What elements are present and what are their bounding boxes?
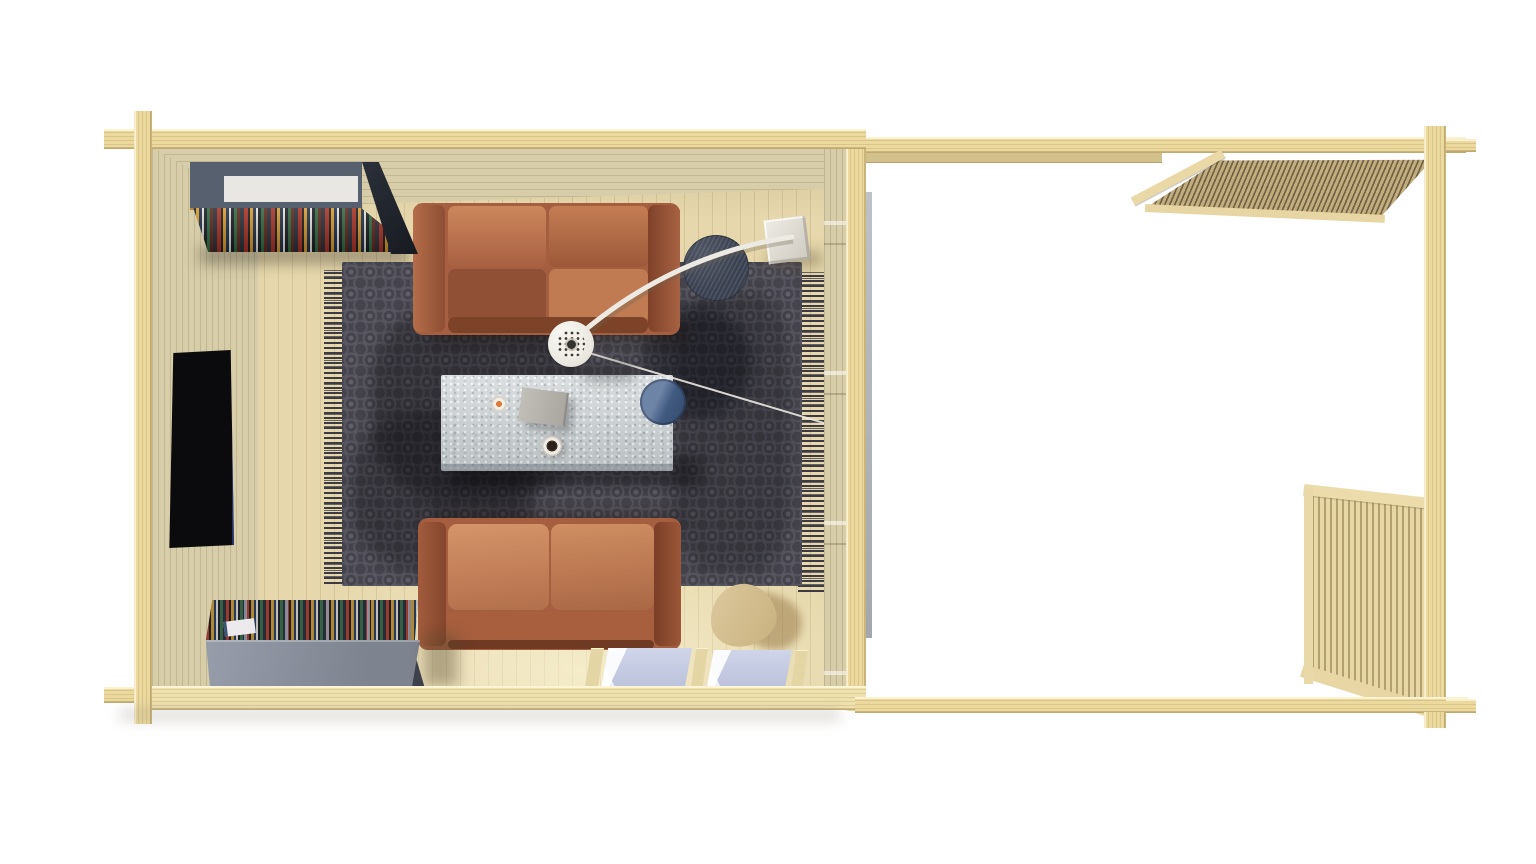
- northwest-corner-stub: [134, 111, 152, 131]
- bookshelf-south-front: [198, 640, 420, 692]
- partition-glazing-edge: [866, 192, 872, 638]
- small-dish: [490, 395, 508, 413]
- sofa-north-back-cushion-left: [448, 206, 546, 267]
- terrace-corner-post: [1424, 140, 1446, 712]
- north-wall-top: [104, 129, 866, 149]
- railing-left-stile: [1304, 486, 1313, 684]
- sofa-south-seat-front: [448, 612, 654, 640]
- terrace-railing: [1300, 480, 1436, 720]
- bookshelf-north-panel: [224, 176, 358, 202]
- lamp-shade: [548, 321, 594, 367]
- south-wall-top: [134, 686, 866, 710]
- sofa-south-back-cushion-right: [551, 524, 654, 610]
- white-book-stack: [223, 618, 256, 637]
- coffee-cup: [542, 436, 562, 456]
- terrace-south-beam: [855, 697, 1468, 713]
- corner-post-bottom-stub: [1424, 712, 1446, 728]
- southeast-beam-stub: [1446, 699, 1476, 713]
- bookshelf-south-books: [206, 600, 418, 640]
- sofa-south-back-cushion-left: [448, 524, 549, 610]
- sofa-north-seat-cushion-left: [448, 269, 546, 323]
- bookshelf-north: [186, 158, 424, 256]
- cabin-top-view: [0, 0, 1536, 864]
- bookshelf-north-top: [190, 162, 362, 210]
- sofa-south-armrest-right: [654, 522, 681, 646]
- partition-wall-top: [846, 129, 866, 711]
- lamp-shade-shadow: [584, 362, 634, 380]
- southwest-corner-stub: [104, 687, 138, 703]
- terrace-north-beam: [866, 137, 1466, 153]
- bookshelf-south-shadow: [424, 634, 458, 686]
- sofa-south: [418, 518, 681, 650]
- terrace-north-beam-inner: [866, 153, 1162, 163]
- coffee-table: [441, 375, 673, 471]
- lamp-shade-center: [567, 340, 576, 349]
- blue-bowl: [640, 379, 686, 425]
- tv-screen: [168, 350, 234, 548]
- corner-post-top-stub: [1424, 126, 1446, 140]
- west-wall-top: [134, 129, 152, 709]
- bookshelf-south: [194, 596, 428, 696]
- partition-wall-face: [824, 147, 848, 698]
- building-ground-shadow: [120, 710, 840, 720]
- northeast-beam-stub: [1446, 139, 1476, 152]
- gray-book: [518, 387, 569, 426]
